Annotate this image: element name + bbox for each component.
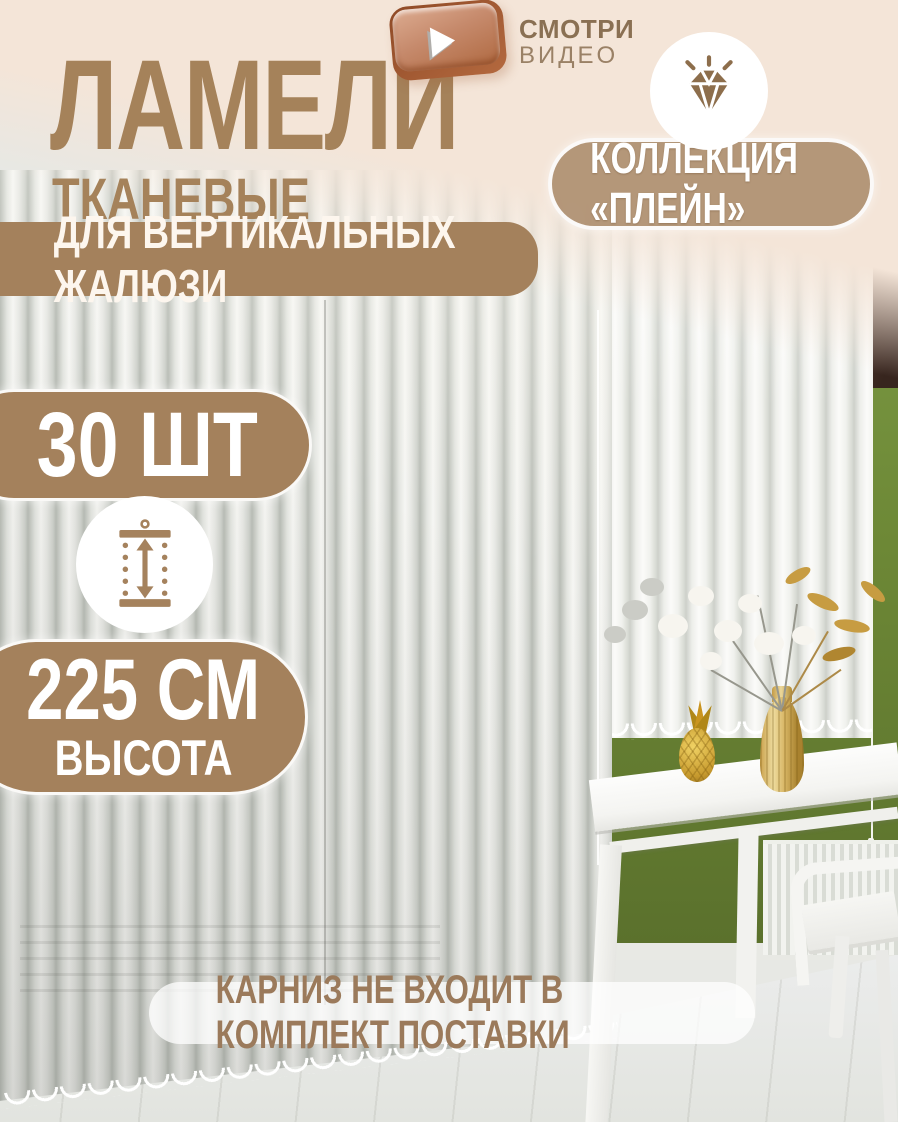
gold-pineapple [679,728,715,782]
gold-leaf [805,589,841,614]
watch-video-label: СМОТРИ [519,14,634,45]
white-leaf [658,614,688,638]
flower-stem [781,669,841,712]
white-leaf [714,620,742,642]
watch-video-button[interactable] [388,0,508,82]
product-type-banner: ДЛЯ ВЕРТИКАЛЬНЫХ ЖАЛЮЗИ [0,222,538,296]
collection-badge: КОЛЛЕКЦИЯ «ПЛЕЙН» [548,138,874,230]
diamond-icon [667,53,751,129]
collection-icon-circle [650,32,768,150]
flower-stem [710,669,782,712]
height-icon-circle [76,496,213,633]
silver-leaf [622,600,648,620]
gold-leaf [821,644,857,664]
gold-leaf [783,564,813,588]
white-leaf [688,586,714,606]
footer-note: КАРНИЗ НЕ ВХОДИТ В КОМПЛЕКТ ПОСТАВКИ [149,982,755,1044]
play-icon [430,25,457,57]
quantity-badge: 30 ШТ [0,389,312,501]
white-leaf [738,594,762,613]
product-banner: ЛАМЕЛИ ТКАНЕВЫЕ ДЛЯ ВЕРТИКАЛЬНЫХ ЖАЛЮЗИ … [0,0,898,1122]
white-leaf [792,626,816,645]
silver-leaf [640,578,664,596]
silver-leaf [604,626,626,643]
balcony-door-seam [324,300,326,1005]
page-title: ЛАМЕЛИ [50,36,594,177]
height-measure-icon [102,518,188,612]
flower-arrangement [596,556,898,721]
watch-video-label: ВИДЕО [519,42,618,70]
white-leaf [700,652,722,670]
gold-leaf [858,578,888,606]
gold-leaf [833,617,871,635]
height-badge: 225 СМ ВЫСОТА [0,639,308,795]
white-leaf [754,632,784,655]
